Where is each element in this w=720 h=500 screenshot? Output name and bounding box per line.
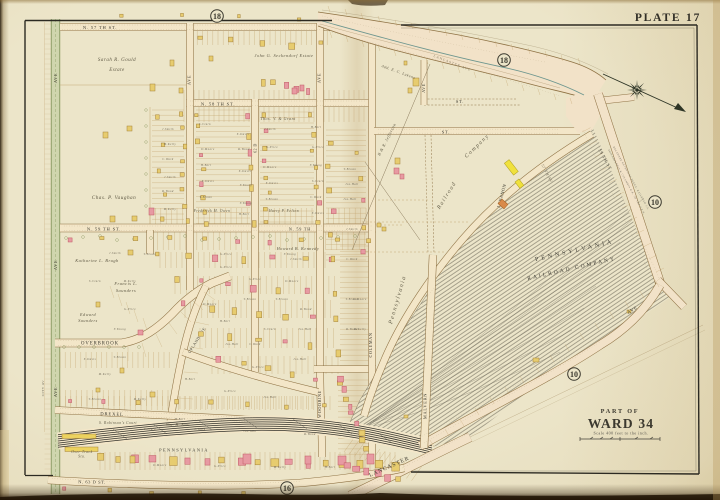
svg-text:M.Kelly: M.Kelly (163, 208, 177, 211)
svg-text:J.Smith: J.Smith (109, 252, 121, 255)
svg-text:M.Kelly: M.Kelly (273, 466, 287, 469)
svg-text:F.Young: F.Young (309, 164, 323, 167)
svg-text:18: 18 (500, 56, 508, 65)
svg-text:Jos.Hall: Jos.Hall (293, 358, 306, 361)
svg-text:PART OF: PART OF (601, 408, 640, 415)
svg-text:R.Wood: R.Wood (303, 433, 316, 436)
svg-text:T.Brown: T.Brown (114, 356, 127, 359)
svg-text:F.Young: F.Young (113, 328, 127, 331)
svg-text:G.Price: G.Price (124, 308, 137, 311)
svg-text:G.Price: G.Price (266, 146, 279, 149)
svg-text:Scale 400 feet to the inch.: Scale 400 feet to the inch. (593, 431, 648, 436)
svg-text:M.Kelly: M.Kelly (98, 373, 112, 376)
svg-text:G.Price: G.Price (220, 266, 233, 269)
svg-text:Jos.Hall: Jos.Hall (243, 430, 256, 433)
svg-text:AVE: AVE (317, 73, 322, 83)
svg-text:R.Wood: R.Wood (299, 308, 312, 311)
svg-text:M.Kelly: M.Kelly (123, 280, 137, 283)
svg-text:M.Kelly: M.Kelly (353, 328, 367, 331)
svg-text:H.Bell: H.Bell (324, 466, 335, 469)
svg-text:C.Ward: C.Ward (162, 158, 174, 161)
svg-text:D.Moore: D.Moore (262, 166, 277, 169)
svg-text:T.Brown: T.Brown (200, 196, 213, 199)
svg-text:S.Clark: S.Clark (264, 328, 276, 331)
svg-text:S.Clark: S.Clark (144, 428, 156, 431)
svg-text:E.Davis: E.Davis (311, 212, 324, 215)
svg-text:C.Ward: C.Ward (249, 343, 261, 346)
svg-text:ST.: ST. (442, 129, 451, 134)
svg-text:H.Bell: H.Bell (219, 320, 230, 323)
svg-text:COLEMAN: COLEMAN (368, 333, 373, 358)
svg-text:S.Clark: S.Clark (199, 123, 211, 126)
svg-text:AVE: AVE (187, 75, 192, 85)
svg-text:Howard B. Kennedy: Howard B. Kennedy (276, 246, 319, 251)
svg-text:J.Smith: J.Smith (264, 128, 276, 131)
svg-text:G.Price: G.Price (224, 390, 237, 393)
svg-text:N. 59 TH: N. 59 TH (289, 227, 311, 232)
svg-text:N. 57 TH ST.: N. 57 TH ST. (83, 25, 117, 30)
svg-text:Saunders: Saunders (116, 288, 136, 293)
svg-text:ST.: ST. (456, 99, 464, 104)
svg-text:E.Davis: E.Davis (236, 133, 249, 136)
svg-text:Estate: Estate (108, 68, 125, 73)
svg-text:H.Bell: H.Bell (200, 164, 211, 167)
svg-text:E.Davis: E.Davis (238, 170, 251, 173)
svg-text:D.Moore: D.Moore (200, 148, 215, 151)
svg-text:G.Price: G.Price (220, 253, 233, 256)
svg-text:J.Smith: J.Smith (290, 258, 302, 261)
svg-text:Sarah R. Gould: Sarah R. Gould (98, 58, 136, 63)
svg-text:G.Price: G.Price (249, 278, 262, 281)
svg-text:WARD 34: WARD 34 (588, 416, 655, 431)
svg-text:D.Moore: D.Moore (352, 298, 367, 301)
svg-text:F.Young: F.Young (283, 253, 297, 256)
svg-text:G.Price: G.Price (252, 366, 265, 369)
svg-text:John G. Seckendorf Estate: John G. Seckendorf Estate (254, 53, 313, 58)
svg-text:C.Ward: C.Ward (310, 196, 322, 199)
svg-text:Wm. H. Beal: Wm. H. Beal (166, 423, 190, 427)
svg-text:Harry P. Felton: Harry P. Felton (268, 209, 299, 213)
svg-text:H.Bell: H.Bell (174, 418, 185, 421)
svg-text:H.Bell: H.Bell (238, 213, 249, 216)
svg-text:AVE: AVE (421, 83, 426, 93)
svg-text:J.Smith: J.Smith (162, 128, 174, 131)
svg-text:Jos.Hall: Jos.Hall (225, 343, 238, 346)
svg-text:MALVERN: MALVERN (423, 393, 428, 419)
svg-text:S. Robinson’s Court: S. Robinson’s Court (99, 421, 138, 425)
svg-text:T.Brown: T.Brown (244, 298, 257, 301)
svg-text:G.Price: G.Price (312, 146, 325, 149)
svg-text:WOODBINE: WOODBINE (317, 390, 322, 418)
svg-text:T.Brown: T.Brown (89, 398, 102, 401)
svg-text:D.Moore: D.Moore (152, 464, 167, 467)
svg-text:H.Bell: H.Bell (184, 378, 195, 381)
svg-text:M.Kelly: M.Kelly (163, 143, 177, 146)
svg-text:E.Davis: E.Davis (83, 358, 96, 361)
svg-text:DREXEL: DREXEL (100, 411, 124, 417)
svg-text:AVE: AVE (53, 387, 58, 397)
svg-text:CITY AV: CITY AV (41, 380, 45, 396)
svg-text:F.Young: F.Young (239, 202, 253, 205)
svg-text:J.Smith: J.Smith (164, 176, 176, 179)
svg-text:F.Young: F.Young (239, 184, 253, 187)
svg-text:PLATE 17: PLATE 17 (635, 12, 701, 24)
svg-text:Saunders: Saunders (78, 318, 98, 323)
svg-text:T.Brown: T.Brown (266, 198, 279, 201)
svg-text:18: 18 (213, 12, 221, 21)
svg-text:N. 59 TH ST.: N. 59 TH ST. (87, 227, 121, 232)
svg-text:Jos.Hall: Jos.Hall (298, 328, 311, 331)
svg-text:C.Ward: C.Ward (194, 428, 206, 431)
svg-text:T.Brown: T.Brown (344, 168, 357, 171)
svg-text:Katharine L. Brugh: Katharine L. Brugh (74, 258, 119, 263)
svg-text:T.Brown: T.Brown (276, 298, 289, 301)
svg-text:E.Davis: E.Davis (201, 180, 214, 183)
svg-text:R.Wood: R.Wood (161, 190, 174, 193)
svg-text:D.Moore: D.Moore (284, 280, 299, 283)
svg-text:J.Smith: J.Smith (346, 228, 358, 231)
svg-text:AVE: AVE (53, 73, 58, 83)
svg-text:62 D: 62 D (254, 143, 258, 153)
svg-text:Over-Track: Over-Track (71, 450, 93, 454)
svg-text:PENNSYLVANIA: PENNSYLVANIA (159, 448, 209, 453)
svg-text:Jos.Hall: Jos.Hall (345, 183, 358, 186)
svg-text:Frederick M. Owen: Frederick M. Owen (193, 209, 231, 213)
svg-text:S.Clark: S.Clark (89, 280, 101, 283)
svg-text:D.Moore: D.Moore (202, 303, 217, 306)
svg-text:N. 58 TH ST.: N. 58 TH ST. (201, 101, 235, 106)
svg-text:C.Ward: C.Ward (346, 258, 358, 261)
svg-text:N. 63 D ST.: N. 63 D ST. (78, 479, 106, 484)
svg-text:Edward: Edward (79, 312, 97, 317)
svg-text:Jos.Hall: Jos.Hall (343, 198, 356, 201)
svg-text:OVERBROOK: OVERBROOK (81, 341, 119, 346)
svg-text:R.Wood: R.Wood (237, 148, 250, 151)
svg-text:Jos.Hall: Jos.Hall (263, 396, 276, 399)
svg-text:G.Price: G.Price (214, 465, 227, 468)
svg-text:AVE: AVE (53, 260, 58, 270)
svg-text:T.Brown: T.Brown (144, 253, 157, 256)
svg-text:10: 10 (651, 198, 659, 207)
svg-text:S.Clark: S.Clark (312, 180, 324, 183)
svg-text:Chas. P. Vaughan: Chas. P. Vaughan (92, 195, 137, 201)
svg-text:10: 10 (570, 370, 578, 379)
svg-text:M.Kelly: M.Kelly (133, 398, 147, 401)
svg-text:Sta.: Sta. (78, 455, 86, 459)
svg-text:H.Bell: H.Bell (310, 126, 321, 129)
svg-text:Thos. V. & Grant: Thos. V. & Grant (260, 116, 296, 121)
svg-text:E.Davis: E.Davis (265, 182, 278, 185)
